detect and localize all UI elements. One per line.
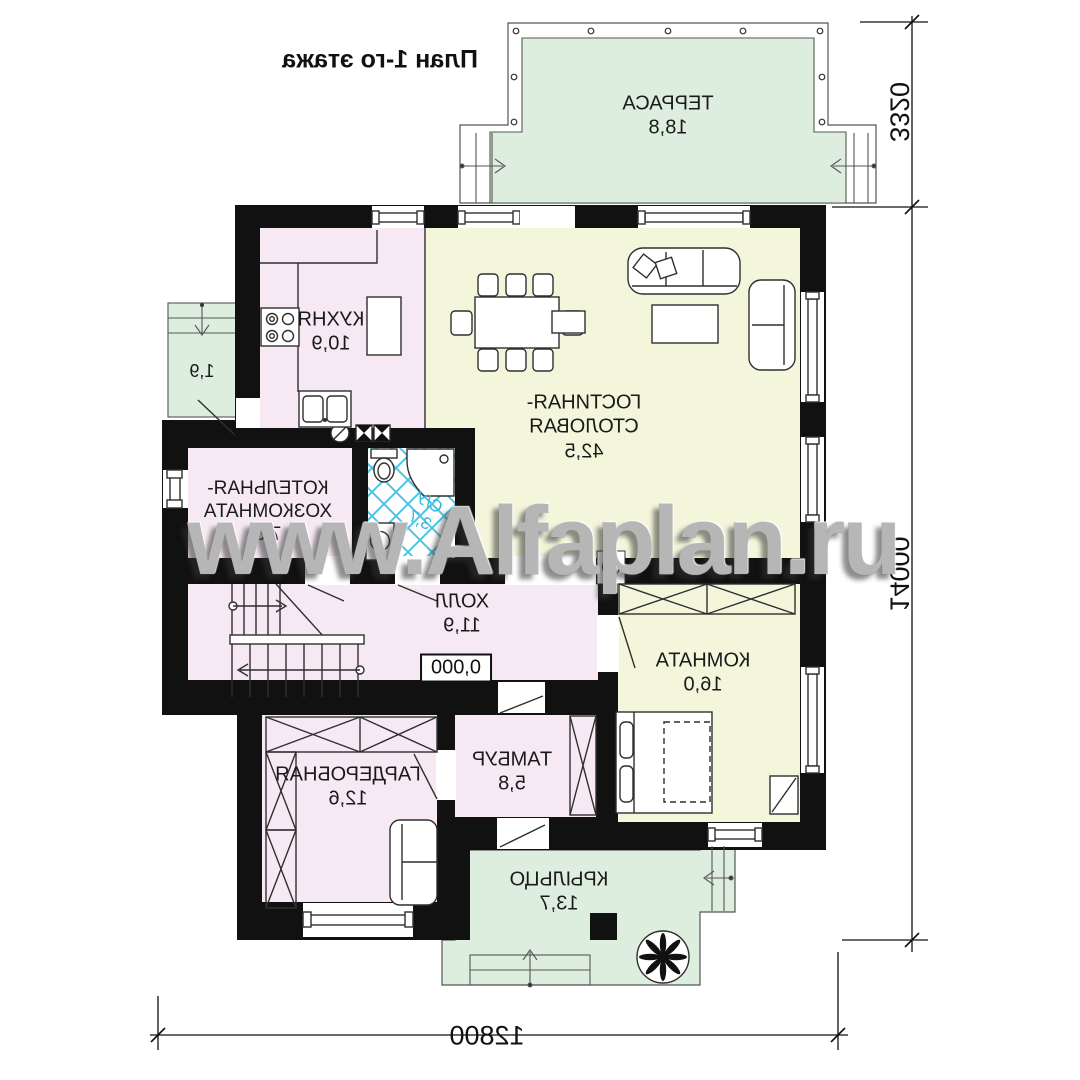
desk-icon: [770, 776, 798, 814]
dimension-house-width: 12800: [449, 1021, 524, 1052]
living-area: 42,5: [527, 439, 642, 463]
kitchen-name: КУХНЯ: [298, 308, 365, 332]
window-top-kitchen: [372, 206, 424, 229]
window-room-to-porch: [708, 823, 762, 847]
tambour-area: 5,8: [472, 772, 552, 796]
tambour-label: ТАМБУР 5,8: [472, 748, 552, 797]
room-label: КОМНАТА 16,0: [656, 649, 751, 698]
wardrobe-room-name: ГАРДЕРОБНАЯ: [275, 763, 421, 787]
sofa-wardrobe-room: [390, 820, 437, 905]
window-left-boiler: [163, 470, 189, 508]
bed-icon: [616, 712, 712, 813]
end-table: [552, 311, 585, 333]
floor-plan: План 1-го этажа ТЕРРАСА 18,8 КУХНЯ 10,9 …: [0, 0, 1080, 1080]
porch-label: КРЫЛЬЦО 13,7: [510, 868, 609, 917]
living-label: ГОСТИНАЯ- СТОЛОВАЯ 42,5: [527, 390, 642, 463]
plant-icon: [637, 931, 689, 983]
front-door: [497, 818, 549, 849]
side-entry-label: 1,9: [189, 361, 214, 383]
porch-column: [590, 913, 617, 940]
coffee-table: [652, 305, 718, 343]
kitchen-area: 10,9: [298, 332, 365, 356]
hall-area: 11,9: [435, 614, 489, 638]
kitchen-sink-icon: [299, 391, 351, 427]
porch-name: КРЫЛЬЦО: [510, 868, 609, 892]
dining-table: [475, 297, 559, 348]
room-area: 16,0: [656, 673, 751, 697]
window-right-living-1: [801, 292, 824, 402]
kitchen-island: [367, 297, 401, 355]
room-name: КОМНАТА: [656, 649, 751, 673]
window-right-room: [801, 667, 824, 773]
side-entry: [168, 303, 237, 417]
stove-icon: [261, 308, 299, 346]
window-top-living-left: [458, 206, 520, 229]
porch-area: 13,7: [510, 892, 609, 916]
page-title: План 1-го этажа: [282, 46, 478, 75]
kitchen-label: КУХНЯ 10,9: [298, 308, 365, 357]
tambour-name: ТАМБУР: [472, 748, 552, 772]
window-bottom-wardrobe: [303, 903, 413, 937]
elevation-mark: 0,000: [420, 654, 492, 683]
sofa-top: [628, 248, 740, 294]
living-name-2: СТОЛОВАЯ: [527, 415, 642, 439]
watermark: www.Alfaplan.ru: [187, 485, 898, 597]
sofa-right: [749, 280, 795, 370]
living-name-1: ГОСТИНАЯ-: [527, 390, 642, 414]
side-entry-area: 1,9: [189, 361, 214, 383]
window-top-living-right: [638, 206, 750, 229]
wardrobe-room-label: ГАРДЕРОБНАЯ 12,6: [275, 763, 421, 812]
terrace-area: 18,8: [622, 116, 713, 140]
terrace-label: ТЕРРАСА 18,8: [622, 92, 713, 141]
wardrobe-room-area: 12,6: [275, 787, 421, 811]
dimension-terrace-depth: 3320: [884, 82, 915, 142]
terrace-name: ТЕРРАСА: [622, 92, 713, 116]
